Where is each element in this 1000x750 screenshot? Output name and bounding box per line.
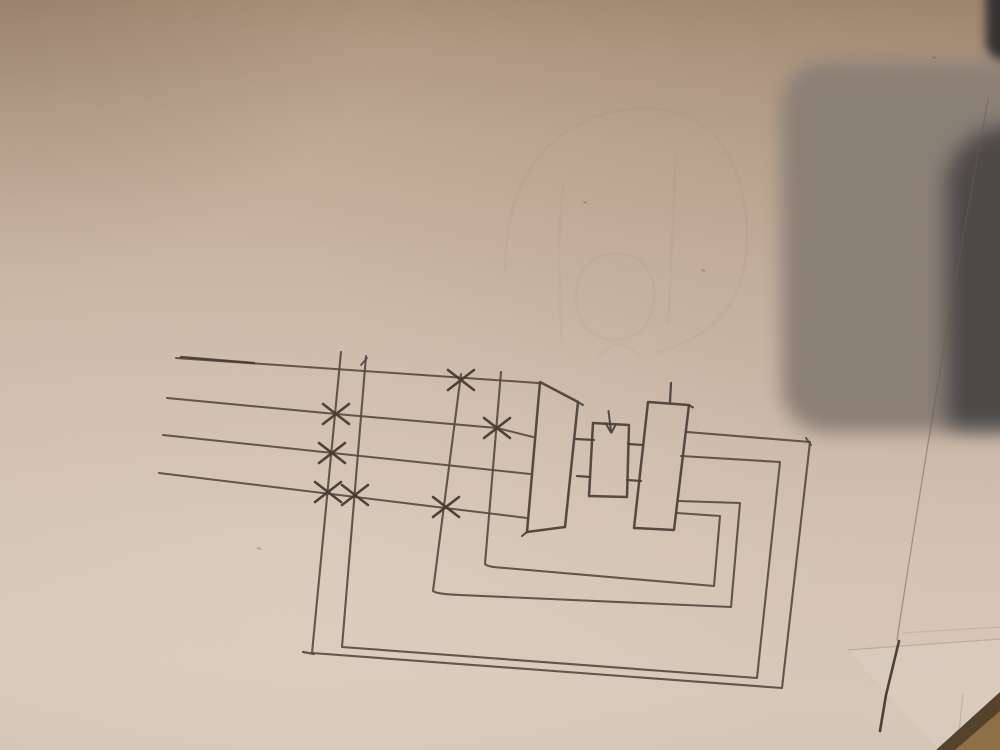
under-sheet-edge xyxy=(848,638,1000,750)
fuse-x-marks xyxy=(315,370,510,517)
device-boxes xyxy=(522,382,693,536)
supply-bus-lines xyxy=(159,357,538,518)
stray-pencil-stroke xyxy=(880,641,899,731)
dark-object xyxy=(946,126,1000,428)
tap-return-loops xyxy=(303,352,811,688)
wood-table-corner xyxy=(936,692,1000,750)
photo-of-paper xyxy=(0,0,1000,750)
dark-object-corner xyxy=(986,0,1000,60)
device-connectors xyxy=(576,439,643,481)
erased-ghost-sketch xyxy=(505,108,747,358)
